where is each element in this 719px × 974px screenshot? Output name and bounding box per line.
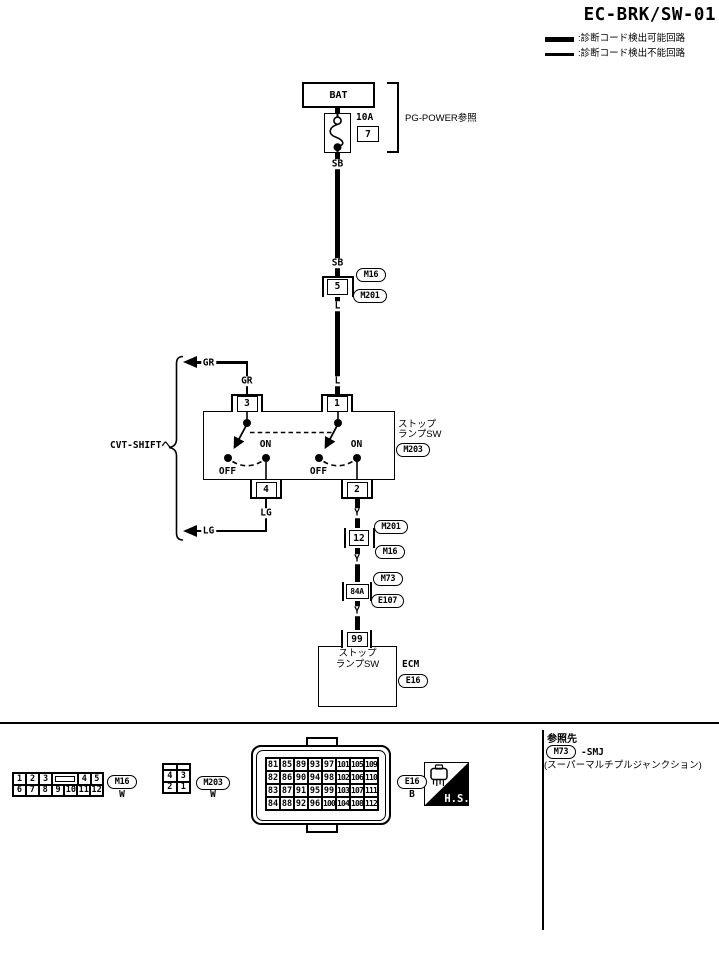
e16-pin-grid: 81 85 89 93 97 101 105 109 82 86 90 94 9…	[265, 757, 379, 811]
pin-4: 4	[256, 482, 277, 498]
e16-cavity: 106	[350, 771, 364, 784]
e16-cavity: 97	[322, 758, 336, 771]
connector-84a-pin: 84A	[346, 584, 369, 599]
ref-panel-note: (スーパーマルチプルジャンクション)	[544, 761, 702, 772]
m16-cavity: 9	[52, 785, 65, 797]
e16-cavity: 91	[294, 784, 308, 797]
connector-ref-m203: M203	[396, 443, 430, 457]
e16-cavity: 81	[266, 758, 280, 771]
e16-cavity: 101	[336, 758, 350, 771]
m16-keyway	[55, 776, 75, 782]
right-on-label: ON	[351, 440, 362, 450]
legend-thick-line-swatch	[545, 37, 574, 42]
legend-detectable-label: :診断コード検出可能回路	[578, 34, 685, 45]
pg-power-ref-label: PG-POWER参照	[405, 114, 477, 125]
lg-branch-arrow-icon	[183, 525, 197, 537]
e16-cavity: 112	[364, 797, 378, 810]
ref-panel-smj: -SMJ	[581, 748, 604, 758]
ecm-box: ストップ ランプSW	[318, 646, 397, 707]
cvt-shift-label: CVT-SHIFTへ	[110, 441, 171, 451]
e16-cavity: 83	[266, 784, 280, 797]
e16-cavity: 108	[350, 797, 364, 810]
e16-cavity: 84	[266, 797, 280, 810]
pg-power-bracket-top	[387, 82, 398, 84]
e16-cavity: 104	[336, 797, 350, 810]
m16-keyway-cell	[52, 773, 78, 785]
connector-12-pin: 12	[349, 530, 369, 546]
e16-cavity: 96	[308, 797, 322, 810]
m16-cavity: 1	[13, 773, 26, 785]
gr-branch-arrow-icon	[183, 356, 197, 368]
m203-cavity: 3	[177, 770, 191, 782]
connector-ref-m16-upper: M16	[356, 268, 386, 282]
m203-cavity: 4	[163, 770, 177, 782]
wire-label-y-3: Y	[352, 606, 362, 616]
ref-panel-divider-line	[542, 730, 544, 930]
pg-power-bracket	[397, 82, 399, 153]
wire-label-sb-1: SB	[330, 159, 345, 169]
left-off-label: OFF	[219, 466, 236, 476]
ref-panel-m73: M73	[546, 745, 576, 759]
m203-cavity: 2	[163, 782, 177, 794]
m16-cavity: 11	[77, 785, 90, 797]
wire-label-l-1: L	[333, 301, 343, 311]
m16-cavity: 6	[13, 785, 26, 797]
connector-ref-e16: E16	[398, 674, 428, 688]
e16-cavity: 88	[280, 797, 294, 810]
m16-cavity: 10	[64, 785, 77, 797]
wire-label-lg-pin: LG	[258, 508, 273, 518]
e16-cavity: 87	[280, 784, 294, 797]
wiring-diagram-page: EC-BRK/SW-01 :診断コード検出可能回路 :診断コード検出不能回路	[0, 0, 719, 974]
hs-label: H.S.	[444, 793, 469, 805]
wire-label-gr-arrow: GR	[201, 358, 216, 368]
connector-ref-m201-upper: M201	[353, 289, 387, 303]
e16-cavity: 98	[322, 771, 336, 784]
ecm-line2: ランプSW	[319, 660, 396, 671]
connector-ref-m16-lower: M16	[375, 545, 405, 559]
e16-cavity: 103	[336, 784, 350, 797]
pin-3: 3	[237, 396, 258, 412]
connector-ref-m73: M73	[373, 572, 403, 586]
e16-cavity: 105	[350, 758, 364, 771]
e16-color: B	[409, 790, 415, 800]
fuse-rating-label: 10A	[356, 113, 373, 123]
connector-5-pin: 5	[327, 279, 348, 295]
m16-connector-face: 1 2 3 4 5 6 7 8 9 10 11 12	[12, 772, 104, 797]
pin-1: 1	[327, 396, 348, 412]
e16-cavity: 94	[308, 771, 322, 784]
e16-cavity: 82	[266, 771, 280, 784]
e16-cavity: 100	[322, 797, 336, 810]
m16-cavity: 2	[26, 773, 39, 785]
wire-label-l-2: L	[333, 376, 343, 386]
footer-divider-line	[0, 722, 719, 724]
page-title: EC-BRK/SW-01	[584, 5, 716, 25]
wire-label-gr-pin: GR	[239, 376, 254, 386]
e16-cavity: 86	[280, 771, 294, 784]
m16-face-ref: M16	[107, 775, 137, 789]
left-on-label: ON	[260, 440, 271, 450]
ecm-label: ECM	[402, 660, 419, 670]
connector-ref-m201-lower: M201	[374, 520, 408, 534]
m203-connector-face: 4 3 2 1	[162, 763, 191, 794]
connector-ref-e107: E107	[371, 594, 404, 608]
pin-2: 2	[347, 482, 368, 498]
e16-cavity: 89	[294, 758, 308, 771]
ref-panel-heading: 参照先	[547, 730, 577, 745]
pin-99: 99	[347, 632, 368, 647]
e16-cavity: 92	[294, 797, 308, 810]
battery-box: BAT	[302, 82, 375, 108]
e16-cavity: 109	[364, 758, 378, 771]
e16-cavity: 85	[280, 758, 294, 771]
e16-cavity: 107	[350, 784, 364, 797]
m16-cavity: 8	[39, 785, 52, 797]
wire-label-lg-arrow: LG	[201, 526, 216, 536]
e16-cavity: 102	[336, 771, 350, 784]
e16-cavity: 95	[308, 784, 322, 797]
cvt-shift-brace	[169, 357, 183, 541]
m16-cavity: 4	[78, 773, 91, 785]
e16-cavity: 93	[308, 758, 322, 771]
right-off-label: OFF	[310, 466, 327, 476]
legend-thin-line-swatch	[545, 53, 574, 56]
e16-face-ref: E16	[397, 775, 427, 789]
m16-color: W	[119, 790, 125, 800]
wire-label-y-1: Y	[352, 508, 362, 518]
e16-cavity: 111	[364, 784, 378, 797]
wire-label-sb-2: SB	[330, 258, 345, 268]
m16-cavity: 12	[90, 785, 103, 797]
m16-cavity: 3	[39, 773, 52, 785]
fuse-box	[324, 113, 351, 153]
pg-power-bracket-bottom	[387, 151, 398, 153]
m16-cavity: 7	[26, 785, 39, 797]
m16-cavity: 5	[91, 773, 104, 785]
legend-undetectable-label: :診断コード検出不能回路	[578, 49, 685, 60]
switch-name-line2: ランプSW	[398, 430, 442, 441]
m203-cavity: 1	[177, 782, 191, 794]
m203-color: W	[210, 790, 216, 800]
e16-cavity: 110	[364, 771, 378, 784]
e16-cavity: 99	[322, 784, 336, 797]
wire-label-y-2: Y	[352, 554, 362, 564]
fuse-number-box: 7	[357, 126, 379, 142]
e16-cavity: 90	[294, 771, 308, 784]
